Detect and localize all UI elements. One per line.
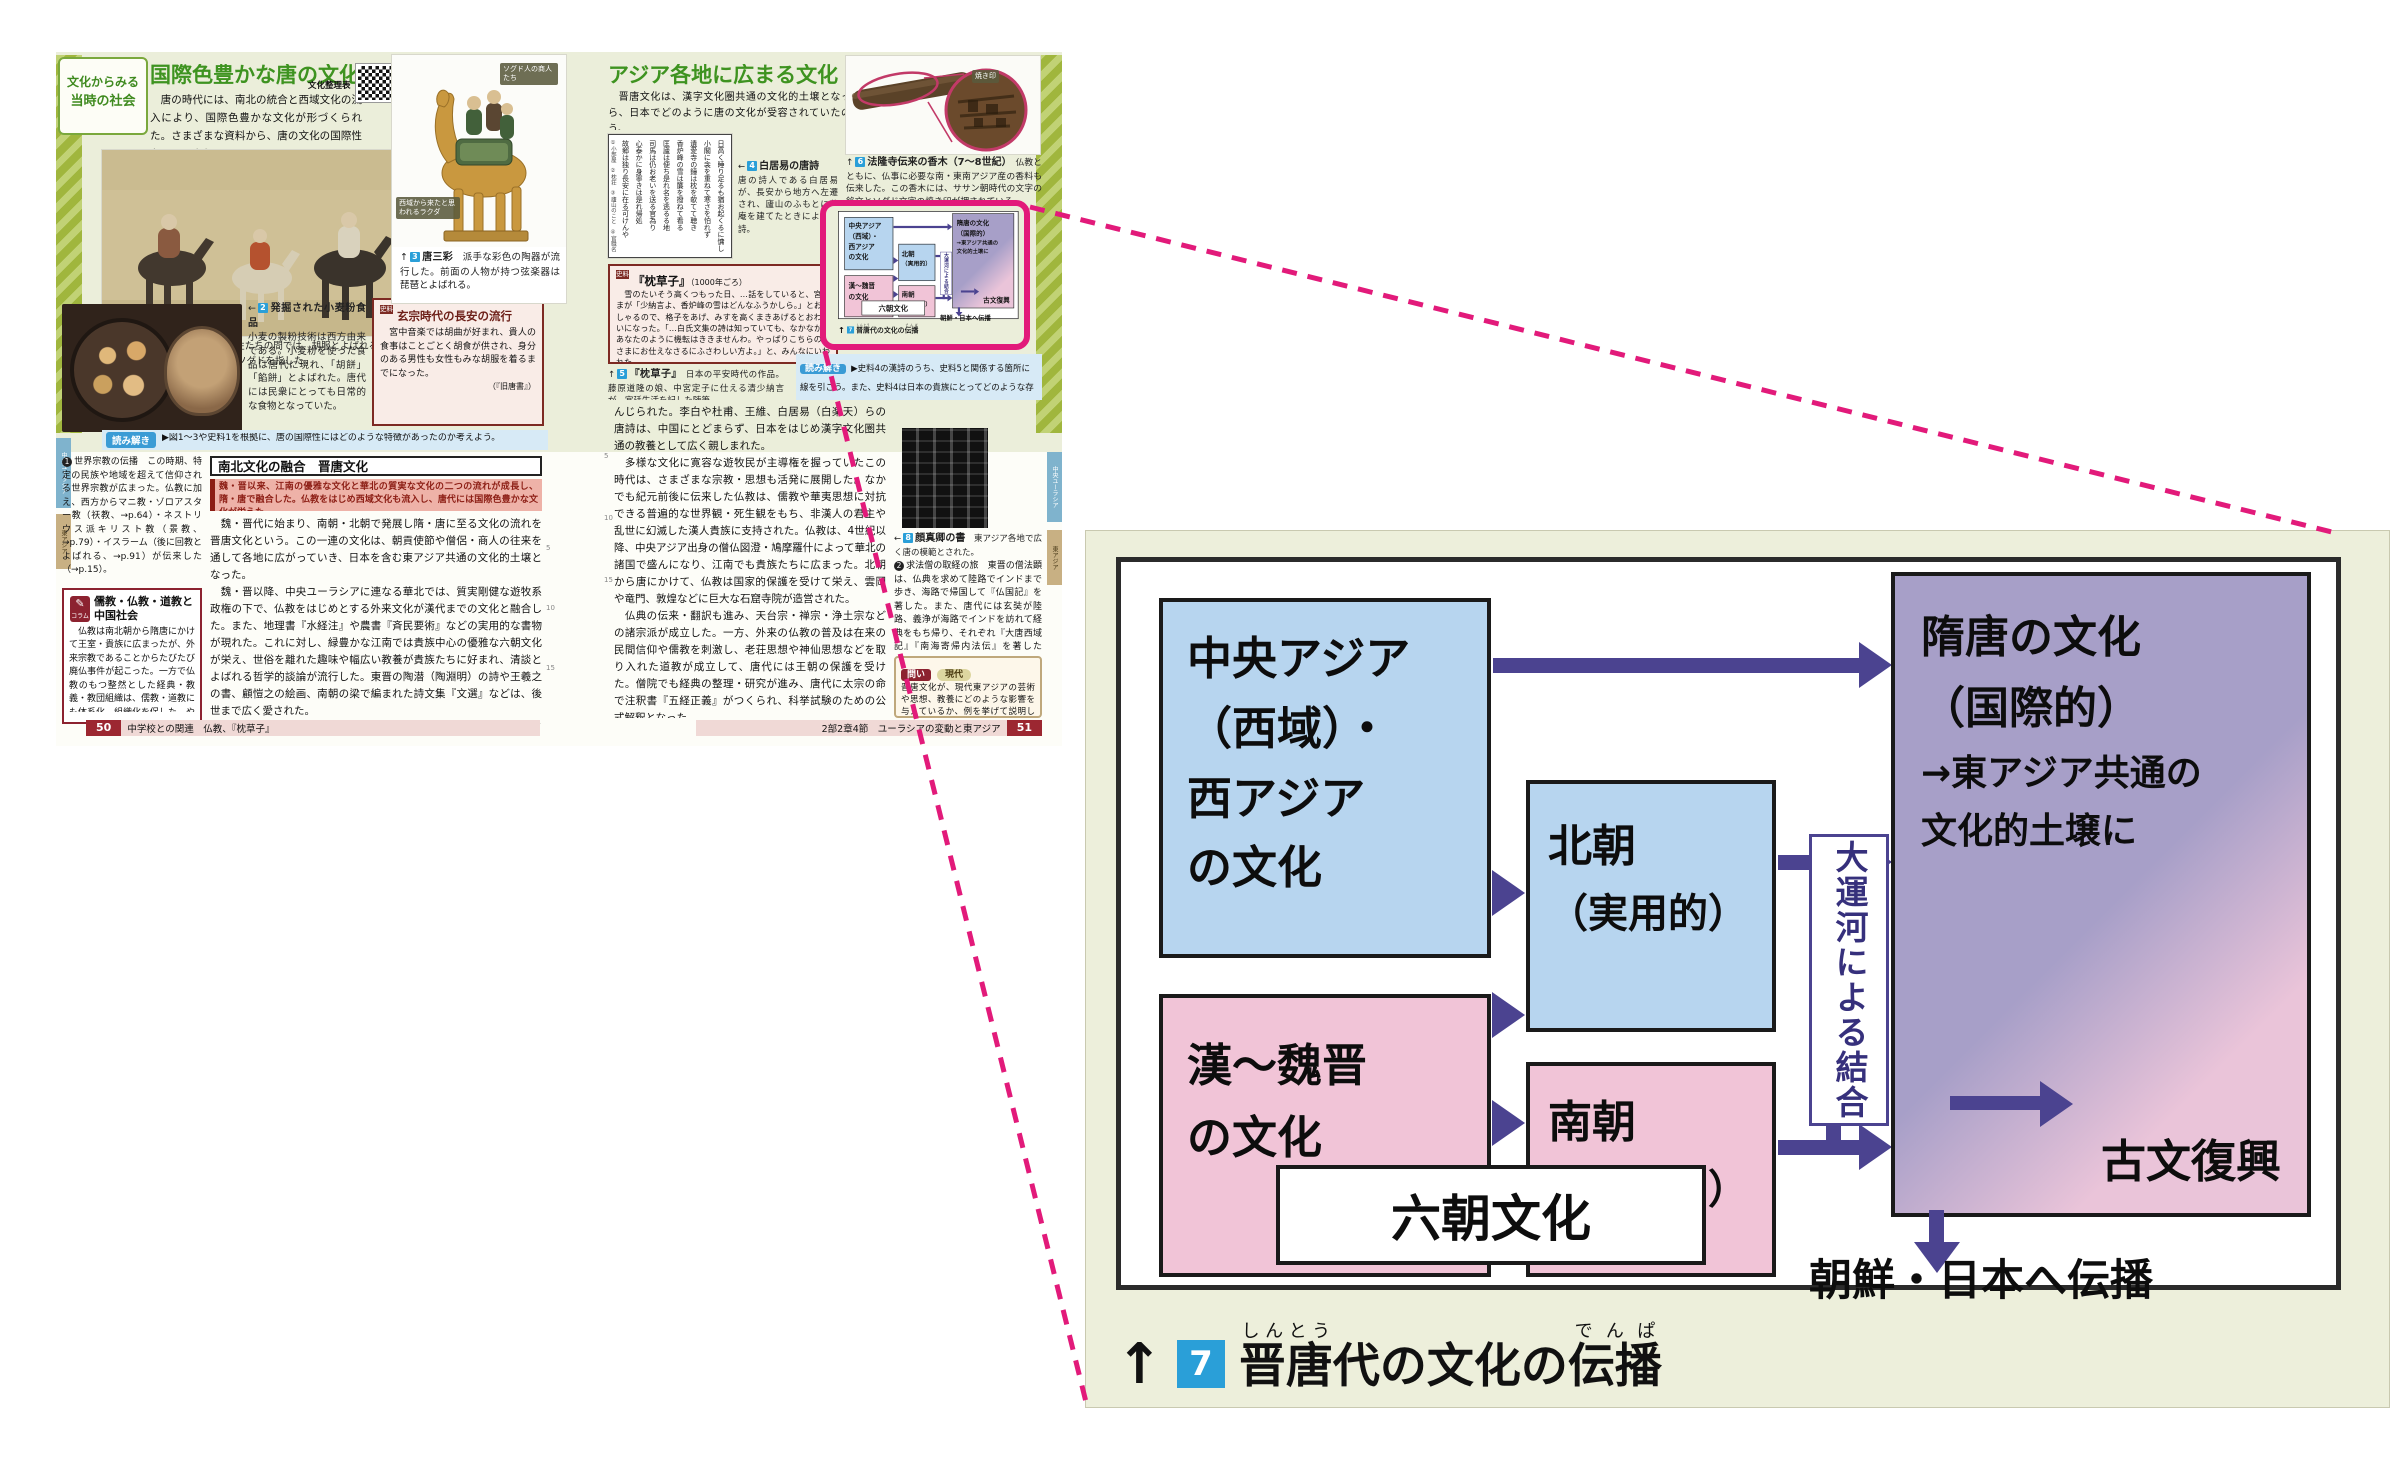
arrow-central-to-suitang [894,226,948,228]
line-number-10: 10 [604,514,613,522]
screenshot-canvas: 中央ユーラシア 東アジア 中央ユーラシア 東アジア 文化からみる 当時の社会 国… [0,0,2400,1475]
label-kobun-revival: 古文復興 [983,295,1010,306]
figure-number-badge: 7 [847,326,854,333]
diagram-caption: ↑ 7 晋唐しんとう代の文化の伝播でんぱ [838,321,1020,334]
left-arrow-icon: ← [894,534,901,544]
tab-east-asia-right: 東アジア [1047,530,1062,585]
arrow-han-to-north [893,275,898,282]
diagram-area: 中央アジア （西域）・ 西アジア の文化 漢～魏晋 の文化 北朝 （実用的） 南… [838,211,1019,319]
textbook-spread: 中央ユーラシア 東アジア 中央ユーラシア 東アジア 文化からみる 当時の社会 国… [56,52,1062,746]
column-badge: ✎コラム [70,596,90,622]
page51-body: んじられた。李白や杜甫、王維、白居易（白楽天）らの唐詩は、中国にとどまらず、日本… [614,404,886,718]
left-arrow-icon: ← [248,303,256,314]
box-sui-tang-culture: 隋唐の文化 （国際的） →東アジア共通の 文化的土壌に 古文復興 [952,213,1014,308]
series-label: 文化からみる 当時の社会 [58,57,148,135]
bread-bowl [164,326,240,416]
box-northern-dynasty: 北朝 （実用的） [1526,780,1776,1032]
column-box: ✎コラム 儒教・仏教・道教と中国社会 仏教は南北朝から隋唐にかけて王室・貴族に広… [62,588,202,724]
tab-central-eurasia-right: 中央ユーラシア [1047,452,1062,522]
yomitoki-banner-50: 読み解き ▶図1～3や史料1を根拠に、唐の国際性にはどのような特徴があったのか考… [102,430,548,450]
question-box: 問い現代 晋唐文化が、現代東アジアの芸術や思想、教養にどのような影響を与えている… [894,656,1042,718]
label-spread-korea-japan: 朝鮮・日本へ伝播 [940,313,991,322]
caption-text: 晋唐しんとう代の文化の伝播でんぱ [856,324,918,334]
section-summary: 魏・晋以来、江南の優雅な文化と華北の質実な文化の二つの流れが成長し、隋・唐で融合… [210,479,542,511]
bai-juyi-poem-box: 日高く睡り足るも猶お起くるに慵し小閣に衾を重ねて寒さを怕れず 遺愛寺の鐘は枕を欹… [608,134,732,258]
box-sui-tang-culture: 隋唐の文化 （国際的） →東アジア共通の 文化的土壌に 古文復興 [1891,572,2311,1217]
shiryo-makura-box: 史料『枕草子』（1000年ごろ） 雪のたいそう高くつもった日、…話をしていると、… [608,264,838,364]
yomitoki-banner-51: 読み解き ▶史料4の漢詩のうち、史料5と関係する箇所に線を引こう。また、史料4は… [796,354,1042,400]
wood-illustration [846,56,1040,154]
arrowhead [1859,642,1892,688]
line-number-15: 15 [604,576,613,584]
jin-tang-culture-diagram: 中央アジア （西域）・ 西アジア の文化 漢～魏晋 の文化 北朝 （実用的） 南… [1116,557,2351,1390]
page51-title: アジア各地に広まる文化 [608,64,848,88]
shiryo-badge: 史料 [616,270,629,279]
arrowhead [974,288,979,295]
box-northern-dynasty: 北朝 （実用的） [898,244,935,281]
box-central-west-asia: 中央アジア （西域）・ 西アジア の文化 [1159,598,1491,958]
pastry-plate [70,318,174,422]
note-1: 1世界宗教の伝播 この時期、特定の民族や地域を超えて信仰される世界宗教が広まった… [62,456,202,582]
section-heading: 南北文化の融合 晋唐文化 [210,456,542,476]
caption-text: 晋唐しんとう代の文化の伝播でんぱ [1239,1321,1662,1390]
note-2: 2求法僧の取経の旅 東晋の僧法顕は、仏典を求めて陸路でインドまで歩き、海路で帰国… [894,560,1042,652]
caption-2: ←2発掘された小麦粉食品 小麦の製粉技術は西方由来である。小麦粉を使った食品は唐… [248,302,366,434]
arrow-han-to-north [1492,992,1525,1038]
box-six-dynasties: 六朝文化 [862,301,925,316]
magnified-diagram-panel: 中央アジア （西域）・ 西アジア の文化 漢～魏晋 の文化 北朝 （実用的） 南… [1085,530,2390,1408]
label-grand-canal: 大運河による結合 [1809,834,1889,1126]
arrow-central-to-north [1492,870,1525,916]
left-arrow-icon: ← [738,162,745,172]
up-arrow-icon: ↑ [838,326,845,333]
caption-8: ←8顔真卿の書 東アジア各地で広く唐の模範とされた。 [894,532,1042,556]
qr-code [356,64,394,102]
up-arrow-icon: ↑ [846,158,853,168]
qr-label: 文化整理表 [308,79,354,92]
diagram-caption: ↑ 7 晋唐しんとう代の文化の伝播でんぱ [1116,1304,2351,1390]
incense-wood-photo: 焼き印 [846,56,1040,154]
arrow-han-to-south [1492,1100,1525,1146]
arrow-to-kobun [1950,1096,2040,1110]
label-grand-canal: 大運河による結合 [940,252,952,295]
shiryo-changan-box: 史料玄宗時代の長安の流行 宮中音楽では胡曲が好まれ、貴人の食事はことごとく胡食が… [372,298,544,426]
up-arrow-icon: ↑ [1116,1340,1163,1390]
arrow-central-to-suitang [1493,658,1859,673]
page50-intro: 唐の時代には、南北の統合と西域文化の流入により、国際色豊かな文化が形づくられた。… [150,92,362,150]
callout-line-top [1030,207,2336,533]
arrow-han-to-south [893,291,898,298]
box-six-dynasties: 六朝文化 [1276,1165,1706,1265]
caption-5: ↑5『枕草子』 日本の平安時代の作品。藤原道隆の娘、中宮定子に仕える清少納言が、… [608,368,784,400]
arrowhead [2040,1081,2073,1127]
badge-brand-mark: 焼き印 [972,70,999,83]
label-spread-korea-japan: 朝鮮・日本へ伝播 [1809,1246,2153,1308]
diagram-area: 中央アジア （西域）・ 西アジア の文化 漢～魏晋 の文化 北朝 （実用的） 南… [1116,557,2341,1290]
badge-sogdian-merchants: ソグド人の商人たち [500,63,558,85]
yan-zhenqing-calligraphy [902,428,988,528]
up-arrow-icon: ↑ [400,252,408,263]
arrow-to-kobun [961,290,974,292]
arrow-central-to-north [893,257,898,264]
line-number-15: 15 [546,664,555,672]
badge-western-camel: 西域から来たと思われるラクダ [396,197,460,219]
footer-50: 50 中学校との関連 仏教、『枕草子』 [86,720,540,736]
line-number-5: 5 [604,452,608,460]
wheat-food-photo [62,304,242,432]
box-central-west-asia: 中央アジア （西域）・ 西アジア の文化 [844,217,893,270]
page50-body: 魏・晋代に始まり、南朝・北朝で発展し隋・唐に至る文化の流れを晋唐文化という。この… [210,516,542,724]
arrow-south-to-suitang [936,297,948,299]
jin-tang-culture-diagram: 中央アジア （西域）・ 西アジア の文化 漢～魏晋 の文化 北朝 （実用的） 南… [838,211,1020,334]
line-number-5: 5 [546,544,550,552]
line-number-10: 10 [546,604,555,612]
caption-3: ↑3唐三彩 派手な彩色の陶器が流行した。前面の人物が持つ弦楽器は琵琶とよばれる。 [400,251,560,299]
footer-51: 2部2章4節 ユーラシアの変動と東アジア 51 [696,720,1042,736]
sancai-camel-photo: ソグド人の商人たち 西域から来たと思われるラクダ ↑3唐三彩 派手な彩色の陶器が… [392,55,566,303]
arrow-south-to-suitang [1778,1140,1859,1155]
pencil-icon: ✎ [70,596,90,611]
arrowhead [1859,1124,1892,1170]
figure-number-badge: 7 [1177,1340,1225,1388]
up-arrow-icon: ↑ [608,370,615,380]
label-kobun-revival: 古文復興 [2101,1126,2281,1199]
shiryo-badge: 史料 [380,305,393,314]
arrow-to-korea-japan [1929,1210,1944,1242]
